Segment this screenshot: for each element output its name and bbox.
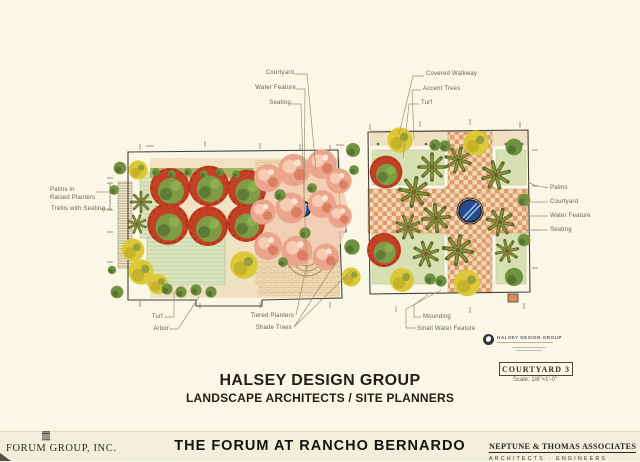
label-water-feature-upper: Water Feature (244, 85, 296, 93)
label-palms-raised-planters: Palms in Raised Planters (50, 187, 96, 202)
label-turf-left: Turf (133, 314, 163, 322)
stamp-address-line (497, 342, 553, 344)
water-feature-fountain (457, 198, 483, 224)
label-arbor: Arbor (133, 326, 169, 334)
stamp-fineprint-line (512, 347, 546, 348)
left-courtyard-plan (108, 149, 352, 306)
label-courtyard-upper: Courtyard (244, 70, 294, 78)
footer-band: FORUM GROUP, INC. THE FORUM AT RANCHO BE… (0, 431, 640, 461)
forum-group-temple-icon (41, 431, 51, 441)
firm-name: HALSEY DESIGN GROUP (120, 372, 520, 390)
architect-subtitle: ARCHITECTS · ENGINEERS (489, 456, 637, 462)
stamp-title: HALSEY DESIGN GROUP (497, 335, 562, 340)
client-name: FORUM GROUP, INC. (6, 443, 117, 454)
label-seating-upper: Seating (244, 100, 291, 108)
label-mounding: Mounding (423, 314, 451, 322)
right-courtyard-plan (367, 127, 530, 302)
label-covered-walkway: Covered Walkway (426, 71, 477, 79)
architect-block: NEPTUNE & THOMAS ASSOCIATES ARCHITECTS ·… (489, 436, 637, 462)
label-shade-trees: Shade Trees (244, 325, 292, 333)
project-title: THE FORUM AT RANCHO BERNARDO (150, 438, 490, 454)
designer-stamp: HALSEY DESIGN GROUP (483, 334, 575, 351)
architect-name: NEPTUNE & THOMAS ASSOCIATES (489, 442, 636, 453)
firm-title-block: HALSEY DESIGN GROUP LANDSCAPE ARCHITECTS… (120, 372, 520, 405)
label-turf-right: Turf (421, 100, 432, 108)
label-palms-right: Palms (550, 185, 568, 193)
label-water-feature-right: Water Feature (550, 213, 591, 221)
label-tiered-planters: Tiered Planters (244, 313, 294, 321)
label-accent-trees: Accent Trees (423, 86, 460, 94)
stamp-logo-icon (483, 334, 494, 345)
label-seating-right: Seating (550, 227, 572, 235)
label-courtyard-right: Courtyard (550, 199, 578, 207)
stamp-fineprint-line (516, 350, 542, 351)
label-small-water-feature: Small Water Feature (417, 326, 476, 334)
firm-subtitle: LANDSCAPE ARCHITECTS / SITE PLANNERS (120, 391, 520, 405)
label-trellis-seating: Trellis with Seating (51, 206, 105, 214)
